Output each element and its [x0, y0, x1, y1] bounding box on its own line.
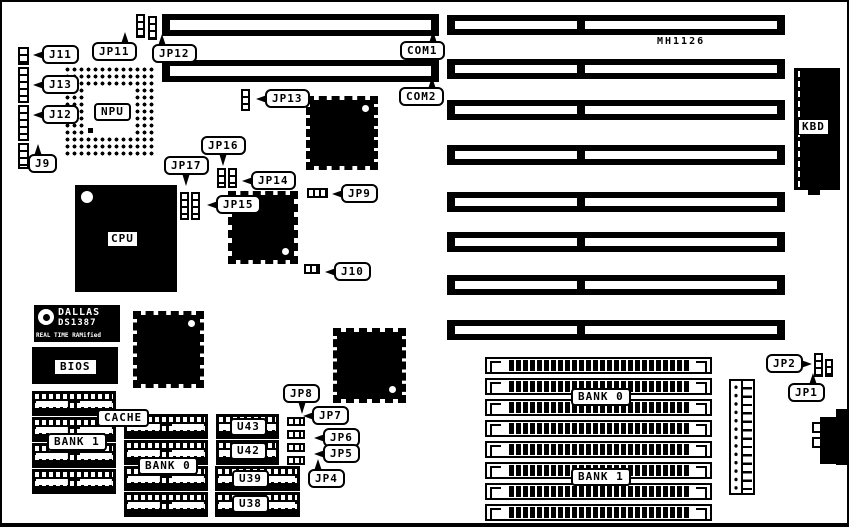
bank0-dip-label: BANK 0	[138, 457, 198, 475]
jp9-jumper	[307, 188, 328, 198]
jp11-jumper	[136, 14, 145, 38]
dip-chip	[32, 469, 116, 494]
jp13-label: JP13	[265, 89, 310, 108]
npu-pin1-marker	[88, 128, 93, 133]
isa-slot	[447, 275, 785, 295]
dip-chip	[124, 492, 208, 517]
simm-socket	[485, 357, 712, 374]
bank1-dip-label: BANK 1	[47, 433, 107, 451]
dallas-rtc-chip: DALLAS DS1387 REAL TIME RAMified	[34, 305, 120, 342]
jp11-label: JP11	[92, 42, 137, 61]
j11-header	[18, 47, 29, 65]
jp12-jumper	[148, 16, 157, 40]
dallas-brand: DALLAS	[58, 307, 100, 318]
j13-header	[18, 67, 29, 103]
com2-connector	[162, 60, 439, 82]
power-header	[729, 379, 755, 495]
qfp-chip-1	[310, 100, 374, 166]
simm-socket	[485, 420, 712, 437]
qfp-chip-3	[137, 315, 200, 384]
jp14-label: JP14	[251, 171, 296, 190]
bank1-simm-label: BANK 1	[571, 468, 631, 486]
jp7-label: JP7	[312, 406, 349, 425]
edge-connector-pin-2	[812, 437, 822, 448]
jp15-label: JP15	[216, 195, 261, 214]
jp13-jumper	[241, 89, 250, 111]
j13-label: J13	[42, 75, 79, 94]
isa-slot	[447, 15, 785, 35]
j10-header	[304, 264, 320, 274]
isa-slot	[447, 59, 785, 79]
isa-slot	[447, 320, 785, 340]
isa-slot	[447, 192, 785, 212]
cpu-pin1-dot	[81, 191, 93, 203]
com2-label: COM2	[399, 87, 444, 106]
jp16-jumper	[217, 168, 226, 188]
power-header-cells	[741, 381, 752, 493]
jp6-jumper	[287, 430, 305, 439]
jp4-label: JP4	[308, 469, 345, 488]
cache-label: CACHE	[97, 409, 149, 427]
jp1-label: JP1	[788, 383, 825, 402]
dallas-clock-logo	[38, 309, 54, 325]
jp2-label: JP2	[766, 354, 803, 373]
simm-socket	[485, 504, 712, 521]
com2-slot-opening	[170, 66, 431, 76]
qfp-chip-4	[337, 332, 402, 399]
edge-connector-body	[820, 417, 840, 464]
power-header-pins	[732, 383, 740, 491]
isa-slot	[447, 232, 785, 252]
jp12-label: JP12	[152, 44, 197, 63]
jp17-jumper	[180, 192, 189, 220]
edge-connector-pin-1	[812, 422, 822, 433]
qfp4-pin1-dot	[389, 386, 396, 393]
jp17-label: JP17	[164, 156, 209, 175]
jp8-label: JP8	[283, 384, 320, 403]
dallas-part-number: DS1387	[58, 318, 97, 328]
j9-label: J9	[28, 154, 57, 173]
isa-slot	[447, 145, 785, 165]
jp5-jumper	[287, 443, 305, 452]
npu-label: NPU	[94, 103, 131, 121]
com1-label: COM1	[400, 41, 445, 60]
dallas-tagline: REAL TIME RAMified	[36, 332, 101, 339]
jp9-label: JP9	[341, 184, 378, 203]
simm-socket	[485, 441, 712, 458]
isa-slot	[447, 100, 785, 120]
jp4-jumper	[287, 456, 305, 465]
jp16-label: JP16	[201, 136, 246, 155]
jp14-jumper	[228, 168, 237, 188]
board-model-silkscreen: MH1126	[657, 36, 705, 47]
qfp1-pin1-dot	[362, 105, 369, 112]
u43-label: U43	[230, 418, 267, 436]
com1-slot-opening	[170, 20, 431, 30]
jp1-jumper	[825, 359, 833, 377]
jp15-jumper	[191, 192, 200, 220]
bios-label: BIOS	[53, 358, 98, 376]
u39-label: U39	[232, 470, 269, 488]
j10-label: J10	[334, 262, 371, 281]
u42-label: U42	[230, 442, 267, 460]
j12-label: J12	[42, 105, 79, 124]
qfp2-pin1-dot	[282, 248, 289, 255]
bank0-simm-label: BANK 0	[571, 388, 631, 406]
qfp3-pin1-dot	[188, 320, 195, 327]
com1-connector	[162, 14, 439, 36]
jp5-label: JP5	[323, 444, 360, 463]
j12-header	[18, 105, 29, 141]
kbd-tab	[808, 190, 820, 195]
kbd-label: KBD	[799, 120, 828, 134]
j11-label: J11	[42, 45, 79, 64]
motherboard-diagram: J11 J13 J12 J9 JP11 JP12 NPU COM1 COM2 J…	[0, 0, 849, 527]
u38-label: U38	[232, 495, 269, 513]
cpu-label: CPU	[108, 232, 137, 246]
jp7-jumper	[287, 417, 305, 426]
